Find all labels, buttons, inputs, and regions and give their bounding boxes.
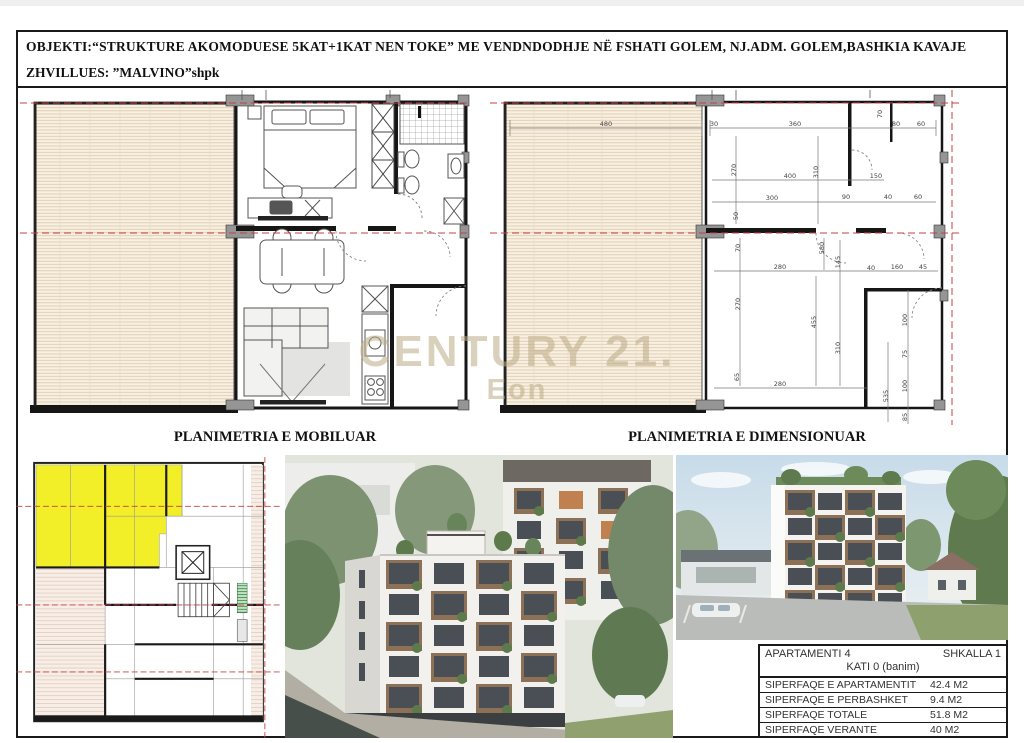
caption-furnished-plan: PLANIMETRIA E MOBILUAR bbox=[125, 429, 425, 446]
info-table-row: SIPERFAQE E APARTAMENTIT42.4 M2 bbox=[760, 678, 1006, 693]
dimension-value: 270 bbox=[730, 164, 738, 176]
dimension-value: 30 bbox=[710, 120, 718, 128]
project-title: OBJEKTI:“STRUKTURE AKOMODUESE 5KAT+1KAT … bbox=[26, 39, 966, 55]
dimension-value: 270 bbox=[734, 298, 742, 310]
terrace-area bbox=[30, 102, 238, 413]
floor-label: KATI 0 (banim) bbox=[760, 661, 1006, 673]
dimension-value: 100 bbox=[901, 314, 909, 326]
info-table-row: SIPERFAQE E PERBASHKET9.4 M2 bbox=[760, 693, 1006, 708]
apartment-info-table: APARTAMENTI 4 SHKALLA 1 KATI 0 (banim) S… bbox=[758, 644, 1008, 738]
info-table-row: SIPERFAQE VERANTE40 M2 bbox=[760, 723, 1006, 738]
building-render-main bbox=[285, 455, 673, 738]
key-plan bbox=[16, 457, 283, 738]
dimension-value: 70 bbox=[876, 110, 884, 118]
dimension-value: 60 bbox=[917, 120, 925, 128]
info-row-value: 40 M2 bbox=[930, 724, 959, 736]
dimension-value: 45 bbox=[919, 263, 927, 271]
dimension-value: 85 bbox=[901, 413, 909, 421]
dimension-value: 580 bbox=[818, 242, 826, 254]
dimension-value: 480 bbox=[600, 120, 612, 128]
developer-title: ZHVILLUES: ”MALVINO”shpk bbox=[26, 65, 219, 81]
car-side bbox=[692, 603, 740, 617]
dimension-value: 145 bbox=[834, 256, 842, 268]
dimension-value: 70 bbox=[734, 244, 742, 252]
dimension-value: 310 bbox=[812, 166, 820, 178]
title-block: OBJEKTI:“STRUKTURE AKOMODUESE 5KAT+1KAT … bbox=[16, 30, 1008, 88]
apartment-number: APARTAMENTI 4 bbox=[765, 648, 851, 660]
grid-ticks-dim bbox=[712, 90, 870, 100]
car bbox=[615, 695, 645, 707]
elevator-shaft bbox=[176, 546, 210, 580]
dimension-value: 90 bbox=[842, 193, 850, 201]
dimension-value: 280 bbox=[774, 380, 786, 388]
info-table-row: SIPERFAQE TOTALE51.8 M2 bbox=[760, 708, 1006, 723]
caption-dimensioned-plan: PLANIMETRIA E DIMENSIONUAR bbox=[597, 429, 897, 446]
info-row-value: 51.8 M2 bbox=[930, 709, 968, 721]
dimension-value: 40 bbox=[867, 264, 875, 272]
dimension-value: 100 bbox=[901, 380, 909, 392]
wardrobe bbox=[372, 104, 394, 188]
dimension-value: 75 bbox=[901, 350, 909, 358]
info-table-rows: SIPERFAQE E APARTAMENTIT42.4 M2SIPERFAQE… bbox=[760, 678, 1006, 738]
kitchen-units bbox=[362, 286, 388, 404]
grid-ticks bbox=[242, 90, 390, 100]
shaft-element bbox=[237, 620, 247, 642]
dimension-value: 150 bbox=[870, 172, 882, 180]
building-render-side bbox=[676, 455, 1008, 640]
dimension-value: 310 bbox=[834, 342, 842, 354]
dimension-value: 60 bbox=[914, 193, 922, 201]
dimension-value: 50 bbox=[732, 212, 740, 220]
info-row-label: SIPERFAQE TOTALE bbox=[765, 709, 867, 721]
dimension-value: 360 bbox=[789, 120, 801, 128]
tv bbox=[260, 400, 326, 405]
stairwell-number: SHKALLA 1 bbox=[943, 648, 1001, 660]
info-row-label: SIPERFAQE E PERBASHKET bbox=[765, 694, 908, 706]
furnished-floor-plan bbox=[20, 90, 470, 425]
dimension-value: 40 bbox=[884, 193, 892, 201]
dimension-value: 400 bbox=[784, 172, 796, 180]
dimension-value: 455 bbox=[810, 316, 818, 328]
dimension-value: 65 bbox=[733, 373, 741, 381]
page-top-strip bbox=[0, 0, 1024, 6]
green-element bbox=[237, 583, 247, 613]
dimension-value: 535 bbox=[882, 390, 890, 402]
info-table-header: APARTAMENTI 4 SHKALLA 1 KATI 0 (banim) bbox=[760, 646, 1006, 678]
info-row-value: 42.4 M2 bbox=[930, 679, 968, 691]
dimensioned-floor-plan: 4803036070806027031040015030090406050705… bbox=[490, 90, 960, 425]
dimension-value: 160 bbox=[891, 263, 903, 271]
info-row-label: SIPERFAQE E APARTAMENTIT bbox=[765, 679, 916, 691]
info-row-value: 9.4 M2 bbox=[930, 694, 962, 706]
info-row-label: SIPERFAQE VERANTE bbox=[765, 724, 877, 736]
dimension-value: 80 bbox=[892, 120, 900, 128]
terrace-area-dim bbox=[500, 102, 706, 413]
dimension-value: 300 bbox=[766, 194, 778, 202]
dimension-value: 280 bbox=[774, 263, 786, 271]
